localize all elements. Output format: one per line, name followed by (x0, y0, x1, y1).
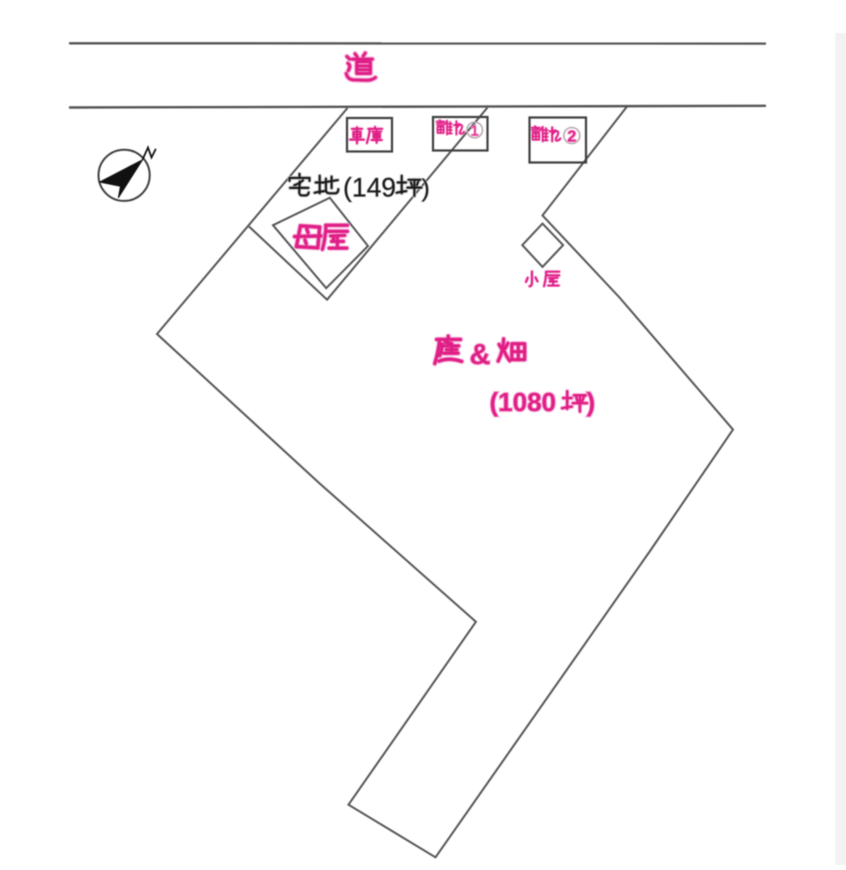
svg-text:(1080: (1080 (490, 387, 557, 417)
svg-text:): ) (587, 387, 596, 417)
svg-text:&: & (470, 339, 491, 371)
svg-text:2: 2 (567, 128, 576, 145)
svg-text:(149: (149 (343, 173, 396, 203)
svg-text:1: 1 (471, 123, 479, 140)
svg-text:): ) (422, 175, 430, 203)
